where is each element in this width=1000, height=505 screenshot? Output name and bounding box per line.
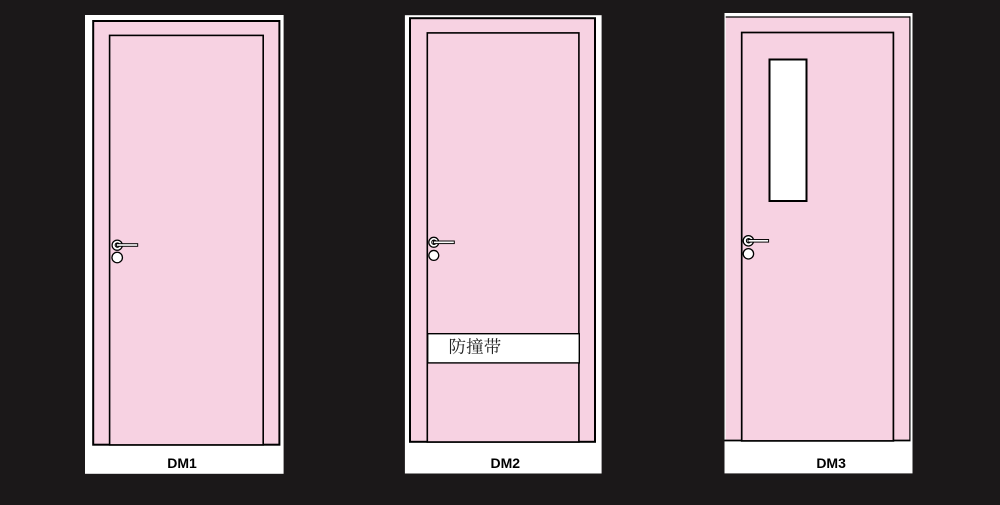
svg-text:DM3: DM3 [816, 455, 846, 471]
svg-text:DM2: DM2 [491, 455, 521, 471]
svg-text:DM1: DM1 [167, 455, 197, 471]
